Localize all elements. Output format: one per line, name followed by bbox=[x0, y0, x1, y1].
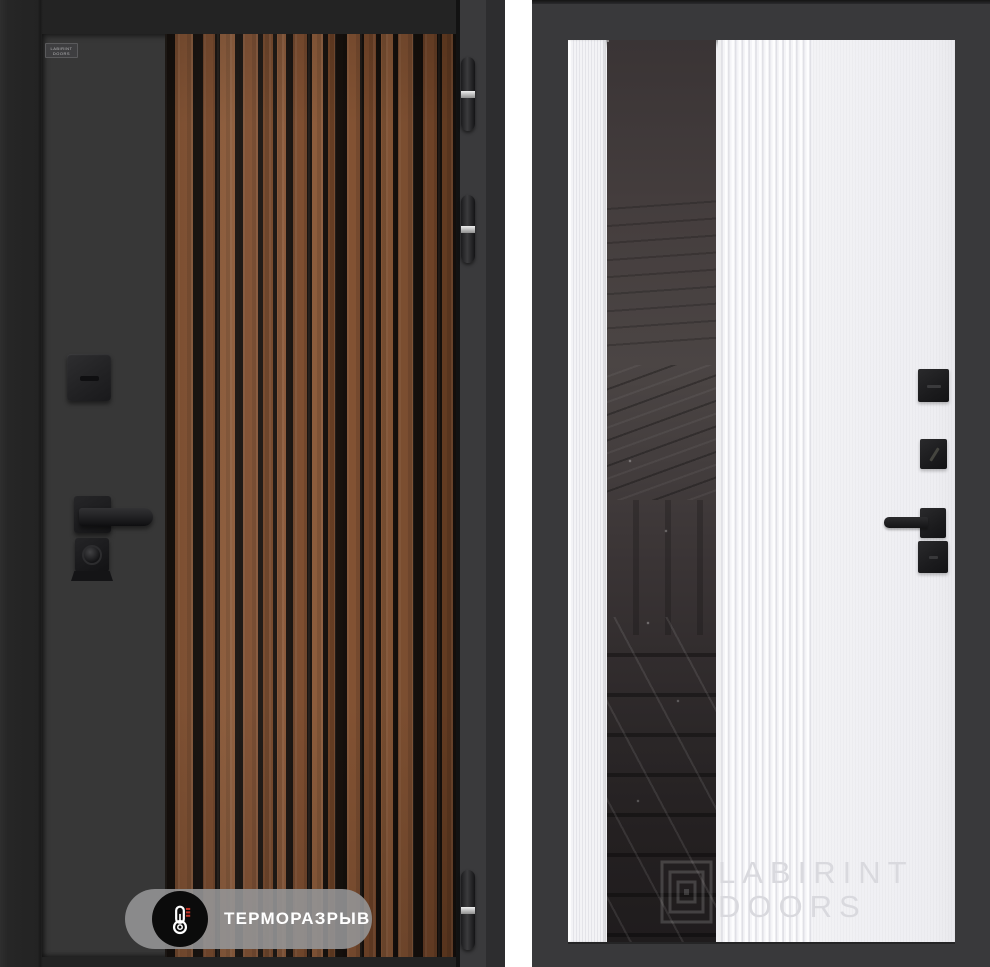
labyrinth-logo-icon bbox=[660, 860, 713, 924]
mirror-reflection-lights bbox=[607, 40, 609, 42]
right-door-photo: LABIRINT DOORS bbox=[532, 0, 990, 967]
right-door-leaf: LABIRINT DOORS bbox=[568, 40, 955, 942]
hinge-band bbox=[461, 226, 475, 233]
left-door-jamb bbox=[456, 0, 505, 967]
badge-label: ТЕРМОРАЗРЫВ bbox=[224, 909, 370, 929]
brand-plate-text: LABIRINT DOORS bbox=[46, 46, 77, 56]
hinge-middle bbox=[461, 195, 475, 263]
left-door-photo: LABIRINT DOORS ТЕРМОРАЗР bbox=[0, 0, 505, 967]
mirror-reflection-ceiling bbox=[607, 193, 716, 346]
watermark-line2: DOORS bbox=[718, 890, 914, 924]
thumbturn-knob bbox=[82, 545, 102, 565]
smooth-white-panel bbox=[813, 40, 955, 942]
hinge-band bbox=[461, 91, 475, 98]
lock-mark bbox=[929, 556, 938, 559]
frame-top-edge bbox=[532, 0, 990, 4]
product-photos-canvas: LABIRINT DOORS ТЕРМОРАЗР bbox=[0, 0, 990, 967]
mirror-reflection-wall bbox=[607, 500, 716, 635]
lock-escutcheon bbox=[67, 354, 111, 401]
watermark-line1: LABIRINT bbox=[718, 856, 914, 890]
wood-slat-panel bbox=[165, 34, 456, 957]
thermo-break-badge: ТЕРМОРАЗРЫВ bbox=[125, 889, 372, 949]
lock-escutcheon-lower bbox=[918, 541, 948, 573]
mirror-reflection-cornice bbox=[607, 365, 716, 500]
lock-escutcheon-upper bbox=[918, 369, 949, 402]
lock-slot bbox=[927, 385, 941, 388]
hinge-bottom bbox=[461, 870, 475, 950]
watermark: LABIRINT DOORS bbox=[718, 856, 914, 924]
thumbturn-plate bbox=[75, 538, 109, 572]
door-handle-lever bbox=[79, 508, 153, 526]
fine-lined-strip bbox=[568, 40, 606, 942]
badge-circle bbox=[152, 891, 208, 947]
thermometer-icon bbox=[163, 902, 197, 936]
brand-plate: LABIRINT DOORS bbox=[45, 43, 78, 58]
key-cylinder bbox=[920, 439, 947, 469]
keyhole-slot bbox=[80, 376, 99, 381]
smoked-mirror-strip bbox=[607, 40, 716, 942]
hinge-top bbox=[461, 57, 475, 131]
door-handle-lever bbox=[884, 517, 928, 528]
handle-base bbox=[71, 571, 113, 581]
keyhole bbox=[929, 447, 939, 461]
hinge-band bbox=[461, 907, 475, 914]
fluted-panel bbox=[718, 40, 813, 942]
